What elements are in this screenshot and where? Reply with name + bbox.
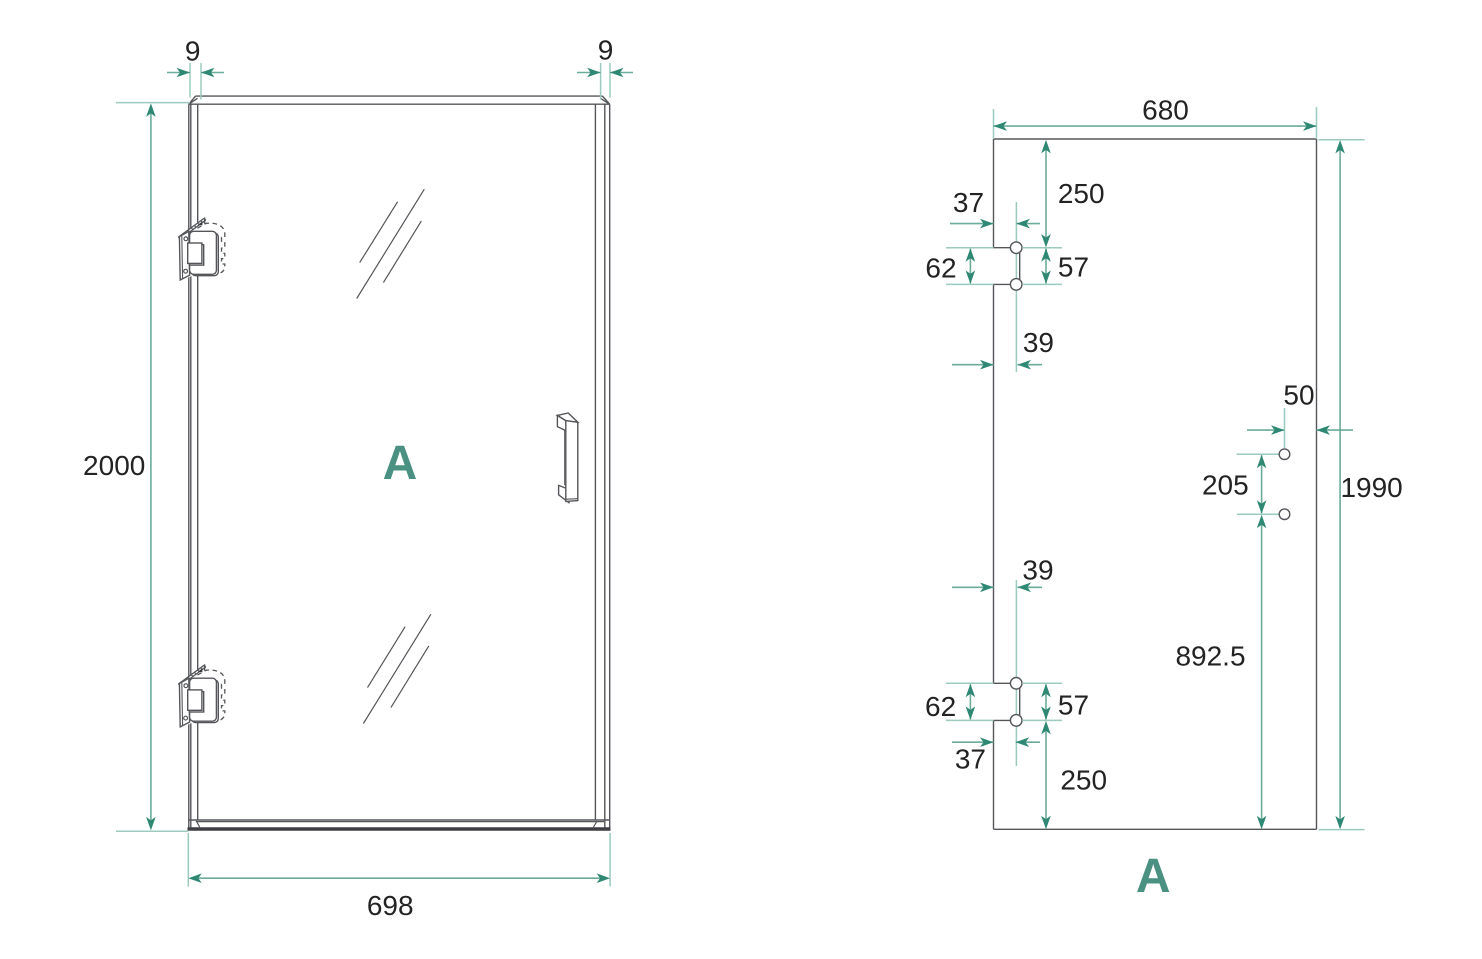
svg-text:37: 37 (955, 744, 986, 775)
svg-text:50: 50 (1283, 379, 1314, 410)
svg-text:39: 39 (1022, 555, 1053, 586)
svg-text:A: A (1136, 850, 1171, 903)
svg-text:37: 37 (953, 187, 984, 218)
svg-text:892.5: 892.5 (1175, 641, 1245, 672)
svg-text:205: 205 (1202, 470, 1249, 501)
svg-text:1990: 1990 (1340, 472, 1402, 503)
svg-text:698: 698 (367, 890, 414, 921)
svg-text:9: 9 (598, 35, 614, 66)
svg-text:39: 39 (1023, 327, 1054, 358)
svg-text:62: 62 (925, 252, 956, 283)
svg-text:A: A (383, 437, 418, 490)
svg-text:250: 250 (1058, 178, 1105, 209)
svg-text:57: 57 (1058, 690, 1089, 721)
svg-text:57: 57 (1058, 252, 1089, 283)
svg-text:62: 62 (925, 691, 956, 722)
svg-text:2000: 2000 (83, 450, 145, 481)
svg-text:9: 9 (185, 36, 201, 67)
svg-text:250: 250 (1060, 765, 1107, 796)
svg-text:680: 680 (1142, 95, 1189, 126)
